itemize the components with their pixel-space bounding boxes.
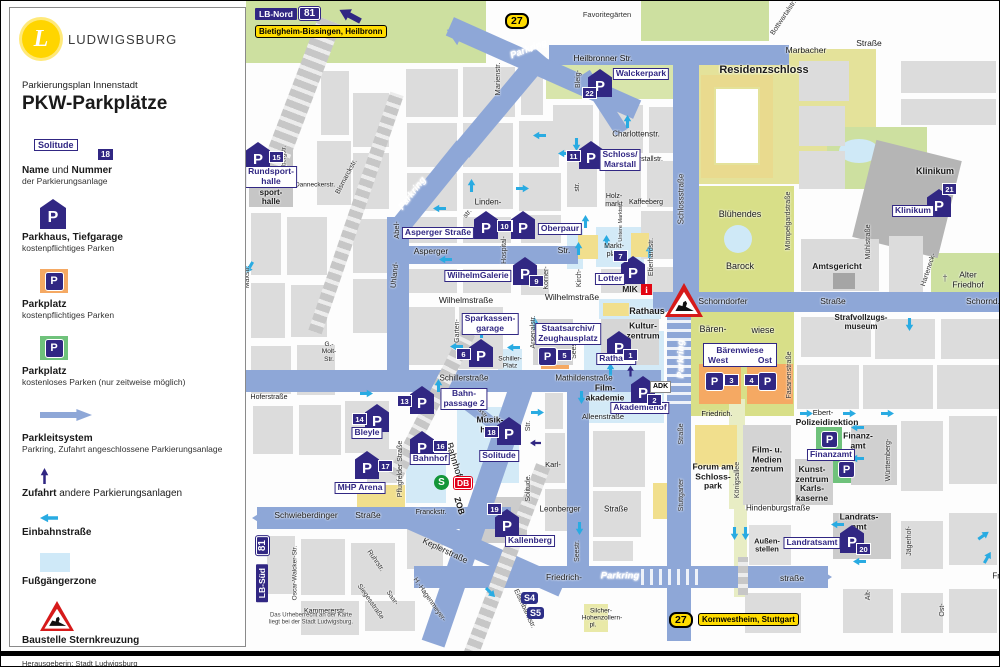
legend-construction-title: Baustelle Sternkreuzung (22, 635, 233, 646)
legend-item-lot-paid: P Parkplatz kostenpflichtiges Parken (22, 266, 233, 320)
legend-name-bold1: Name (22, 165, 49, 176)
legend-item-lot-free: P Parkplatz kostenloses Parken (nur zeit… (22, 333, 233, 387)
legend-lot-free-title: Parkplatz (22, 366, 233, 377)
legend-garage-sub: kostenpflichtiges Parken (22, 243, 233, 253)
legend-item-system: Parkleitsystem Parkring, Zufahrt angesch… (22, 400, 233, 454)
legend-oneway-title: Einbahnstraße (22, 527, 233, 538)
brand-name: LUDWIGSBURG (68, 32, 177, 47)
fussgaengerzone-icon (40, 553, 70, 572)
baerenwiese-title: Bärenwiese (704, 345, 776, 355)
legend-lot-paid-title: Parkplatz (22, 299, 233, 310)
construction-icon (665, 283, 703, 317)
legend-lot-free-iconrow: P (40, 333, 233, 363)
legend-name-bold2: Nummer (72, 165, 113, 176)
legend-system-iconrow (40, 400, 233, 430)
map-subtitle: Parkierungsplan Innenstadt (22, 80, 233, 91)
legend-sample-chips: Solitude 18 (34, 139, 233, 165)
construction-legend-icon (40, 601, 74, 631)
ludwigsburg-logo: L (22, 20, 60, 58)
einbahn-arrow-icon (40, 513, 58, 523)
motorway-81-sign: 81 (299, 7, 320, 20)
legend-zufahrt-iconrow (40, 467, 233, 485)
brand-row: L LUDWIGSBURG (22, 20, 233, 58)
b27-badge-north: 27 (505, 13, 529, 29)
publisher-info: Herausgeberin: Stadt Ludwigsburg Karte: … (22, 659, 233, 667)
sbahn-s4-badge: S4 (521, 592, 538, 604)
legend-system-title: Parkleitsystem (22, 433, 233, 444)
legend-system-sub: Parkring, Zufahrt angeschlossene Parkier… (22, 444, 233, 454)
legend-name-sub: der Parkierungsanlage (22, 176, 233, 186)
legend-lot-free-sub: kostenloses Parken (nur zeitweise möglic… (22, 377, 233, 387)
legend-zufahrt-rest: andere Parkierungsanlagen (56, 488, 182, 499)
adk-badge: ADK (650, 381, 671, 393)
legend-lot-paid-iconrow: P (40, 266, 233, 296)
sbahn-s5-badge: S5 (527, 607, 544, 619)
parkplatz-free-p: P (45, 339, 64, 358)
b27-badge-south: 27 (669, 612, 693, 628)
legend-garage-title: Parkhaus, Tiefgarage (22, 232, 233, 243)
bottom-border-bar (1, 651, 1000, 656)
direction-arrow-icon (336, 4, 363, 27)
legend-lot-paid-sub: kostenpflichtiges Parken (22, 310, 233, 320)
parkplatz-paid-icon: P (40, 269, 68, 293)
legend-panel: L LUDWIGSBURG Parkierungsplan Innenstadt… (9, 7, 246, 647)
sample-name-chip: Solitude (34, 139, 78, 151)
zufahrt-arrow-icon (40, 468, 49, 484)
legend-construction-iconrow (40, 600, 233, 632)
baerenwiese-west-ost: West Ost (704, 355, 776, 365)
sign-lb-sued: LB-Süd (256, 564, 268, 602)
legend-oneway-iconrow (40, 512, 233, 524)
legend-garage-iconrow: P (40, 199, 233, 229)
motorway-81-sign-south: 81 (256, 536, 269, 555)
legend-item-garage: P Parkhaus, Tiefgarage kostenpflichtiges… (22, 199, 233, 253)
parkleitsystem-arrow-icon (40, 409, 92, 421)
parkplatz-paid-p: P (45, 272, 64, 291)
info-icon: i (641, 284, 652, 295)
legend-zufahrt-bold: Zufahrt (22, 488, 56, 499)
sign-lb-nord: LB-Nord (255, 8, 297, 20)
baerenwiese-west: West (708, 355, 728, 365)
sign-direction-south: Kornwestheim, Stuttgart (698, 613, 799, 626)
db-logo: DB (454, 477, 472, 489)
baerenwiese-ost: Ost (758, 355, 772, 365)
map-title: PKW-Parkplätze (22, 93, 233, 115)
legend-name-mid: und (49, 165, 71, 176)
sign-direction-north: Bietigheim-Bissingen, Heilbronn (255, 25, 387, 38)
parking-map-page: FavoritegärtenHeilbronner Str.ParkringMa… (0, 0, 1000, 667)
legend-ped-title: Fußgängerzone (22, 576, 233, 587)
legend-item-name-number: Solitude 18 Name und Nummer der Parkieru… (22, 139, 233, 186)
baerenwiese-label: Bärenwiese West Ost (703, 343, 777, 367)
legend-item-oneway: Einbahnstraße (22, 512, 233, 538)
legend-zufahrt-title: Zufahrt andere Parkierungsanlagen (22, 488, 233, 499)
legend-item-construction: Baustelle Sternkreuzung (22, 600, 233, 646)
legend-item-zufahrt: Zufahrt andere Parkierungsanlagen (22, 467, 233, 499)
sbahn-logo: S (434, 475, 449, 490)
publisher-line1: Herausgeberin: Stadt Ludwigsburg (22, 659, 233, 667)
parkplatz-free-icon: P (40, 336, 68, 360)
sample-number-chip: 18 (98, 149, 113, 160)
legend-ped-iconrow (40, 551, 233, 573)
legend-name-title: Name und Nummer (22, 165, 233, 176)
parkhaus-icon: P (40, 199, 66, 229)
legend-item-ped: Fußgängerzone (22, 551, 233, 587)
